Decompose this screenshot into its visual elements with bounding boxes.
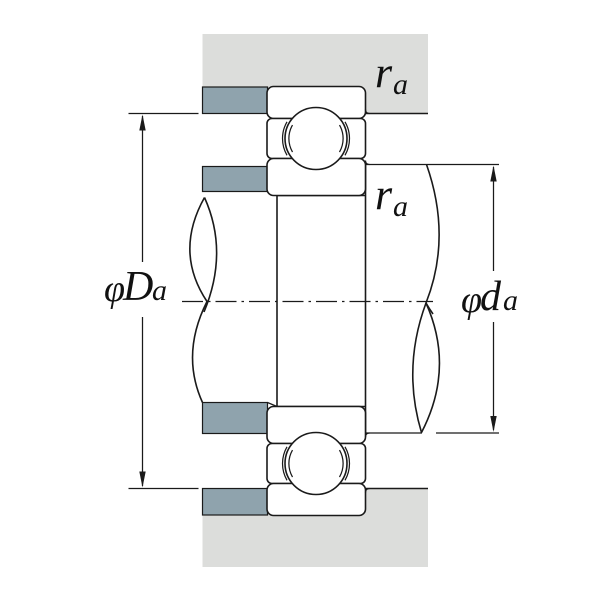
fillet-arc-shaft-bottom [366, 433, 370, 437]
da-arrow-up-icon [490, 166, 496, 182]
fillet-arc-shaft-top [366, 161, 370, 165]
da-arrow-down-icon [490, 416, 496, 432]
shaft-shoulder-band-top [203, 167, 269, 192]
shaft-break-leaf-right-inner [422, 303, 440, 433]
Da-arrow-down-icon [139, 472, 145, 488]
phi-symbol: φ [104, 268, 125, 310]
shaft-break-curve-left [190, 198, 207, 403]
shaft-break-leaf-right-outer [413, 303, 426, 433]
ra-main: r [375, 48, 393, 97]
Da-main: D [122, 264, 153, 310]
ra-main: r [375, 170, 393, 219]
da-sub: a [503, 284, 518, 317]
da-main: d [480, 274, 502, 320]
label-housing-shoulder-diameter: φ D a [104, 264, 167, 310]
housing-shoulder-band-top [203, 87, 268, 114]
shaft-break-curve-right [426, 165, 439, 315]
phi-symbol: φ [461, 279, 482, 321]
label-shaft-fillet-radius: r a [375, 170, 408, 223]
ball-top [285, 108, 347, 170]
Da-arrow-up-icon [139, 115, 145, 131]
ra-sub: a [393, 190, 408, 223]
Da-sub: a [152, 274, 167, 307]
label-shaft-shoulder-diameter: φ d a [461, 274, 518, 321]
bearing-bottom [267, 407, 366, 516]
housing-shoulder-band-bottom [203, 489, 268, 516]
diagram-canvas: φ D a φ d a r a r a [0, 0, 600, 600]
shaft-break-leaf-left [204, 198, 217, 313]
ball-bottom [285, 433, 347, 495]
bearing-top [267, 87, 366, 196]
bearing-mounting-diagram: φ D a φ d a r a r a [0, 0, 600, 600]
shaft-shoulder-band-bottom [203, 403, 268, 434]
ra-sub: a [393, 68, 408, 101]
